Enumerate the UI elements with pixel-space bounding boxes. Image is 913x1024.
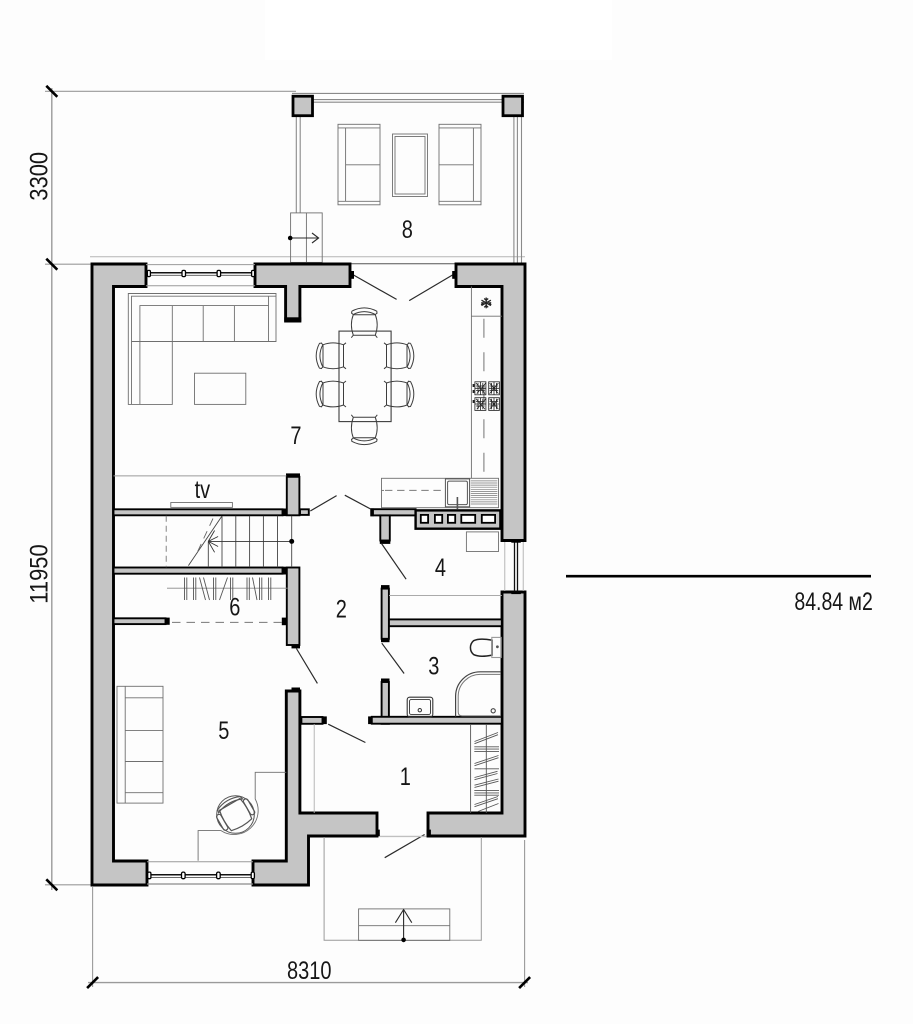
svg-text:11950: 11950 <box>25 544 53 604</box>
svg-text:3300: 3300 <box>25 152 53 201</box>
svg-text:84.84 м2: 84.84 м2 <box>794 588 872 616</box>
svg-text:1: 1 <box>400 763 411 791</box>
svg-text:6: 6 <box>229 594 240 622</box>
svg-text:tv: tv <box>195 476 211 504</box>
svg-text:8310: 8310 <box>287 957 331 985</box>
svg-text:2: 2 <box>336 595 347 623</box>
svg-text:7: 7 <box>290 422 301 450</box>
svg-text:5: 5 <box>218 717 229 745</box>
svg-text:8: 8 <box>402 216 413 244</box>
svg-text:3: 3 <box>428 652 439 680</box>
svg-text:4: 4 <box>435 554 446 582</box>
